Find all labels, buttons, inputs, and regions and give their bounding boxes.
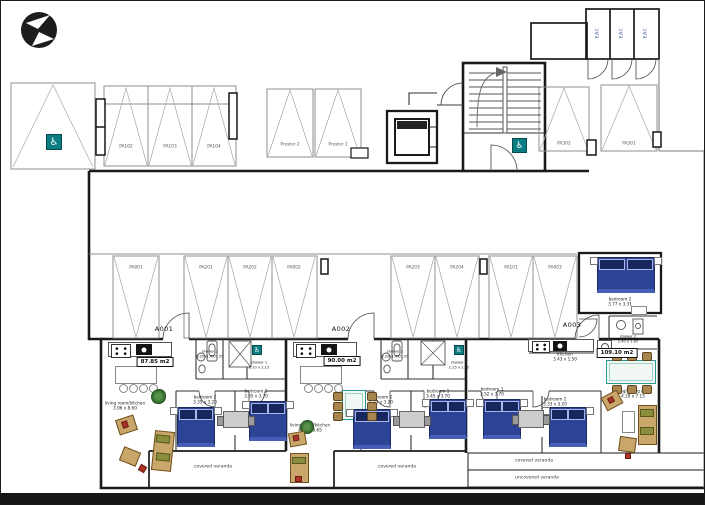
room-dims: 2.40 x 1.65 xyxy=(618,339,638,344)
parking-stall-label: PA003 xyxy=(548,266,561,271)
cushion xyxy=(295,476,302,482)
wheelchair-icon: ♿ xyxy=(46,134,62,150)
dining-counter-table xyxy=(115,366,157,384)
parking-stall-label: PA103 xyxy=(163,145,176,150)
veranda-label: covered veranda xyxy=(515,459,553,464)
room-label-kitchen: kitchen3.43 x 1.50 xyxy=(553,352,577,363)
double-bed xyxy=(177,407,215,447)
unit-area-a001: 87.85 m2 xyxy=(137,357,174,367)
room-label-shower2: shower 23.20x1.49/1.05 xyxy=(196,349,223,358)
room-name: shower 1 xyxy=(449,360,469,365)
parking-stall-label: PA101 xyxy=(504,266,517,271)
chair xyxy=(333,402,343,411)
room-dims: 3.96 x 8.60 xyxy=(105,406,145,411)
chair xyxy=(367,392,377,401)
plant xyxy=(151,389,166,404)
parking-stall-label: PA202 xyxy=(243,266,256,271)
cushion xyxy=(292,457,306,464)
veranda-label: uncovered veranda xyxy=(515,476,559,481)
dining-table xyxy=(606,360,656,384)
parking-stall-label: PA302 xyxy=(557,142,570,147)
nightstand xyxy=(214,407,222,415)
nightstand xyxy=(346,409,354,417)
wheelchair-glyph: ♿ xyxy=(50,137,59,148)
nightstand xyxy=(476,399,484,407)
nightstand xyxy=(242,401,250,409)
parking-stall-label: PA201 xyxy=(199,266,212,271)
cushion xyxy=(625,453,631,459)
double-bed xyxy=(429,399,467,439)
unit-area-a003: 109.10 m2 xyxy=(597,348,638,358)
wheelchair-glyph: ♿ xyxy=(254,346,260,354)
room-label-shower2: shower 22.40 x 1.65 xyxy=(618,334,638,343)
parking-stall-label: PA204 xyxy=(450,266,463,271)
nightstand xyxy=(586,407,594,415)
room-name: shower 2 xyxy=(618,334,638,339)
cushion xyxy=(156,434,171,443)
floorplan-sheet: EAC EAC EAC ♿ ♿ ♿ ♿ PA102 PA103 PA104 Pr… xyxy=(0,0,705,505)
parking-stall-label: Prostor 1 xyxy=(328,143,347,148)
room-label-bedroom1: bedroom 13.35 x 3.70 xyxy=(244,389,268,400)
cushion xyxy=(156,452,171,461)
kitchen-sink-icon xyxy=(136,344,152,355)
nightstand xyxy=(422,399,430,407)
chair-round xyxy=(304,384,313,393)
parking-stall-label: PA203 xyxy=(406,266,419,271)
cushion xyxy=(293,435,300,442)
parking-stall-label: PA001 xyxy=(129,266,142,271)
company-logo-icon xyxy=(17,8,61,52)
veranda-label: covered veranda xyxy=(194,465,232,470)
chair-round xyxy=(139,384,148,393)
desk xyxy=(399,411,425,428)
room-dims: 3.20x1.49/1.05 xyxy=(381,354,408,359)
closet-label: EAC xyxy=(644,28,649,39)
room-dims: 3.43 x 1.50 xyxy=(553,357,577,362)
room-name: shower 1 xyxy=(249,360,269,365)
room-label-bedroom1: bedroom 13.45 x 3.70 xyxy=(426,389,450,400)
room-label-bedroom2-top: bedroom 23.77 x 3.31 xyxy=(608,297,632,308)
chair xyxy=(642,352,652,361)
stove-icon xyxy=(111,344,131,358)
unit-id-a003: A003 xyxy=(563,321,581,329)
kitchen-sink-icon xyxy=(553,341,567,351)
nightstand xyxy=(654,257,662,265)
footer-bar xyxy=(1,493,705,505)
chair xyxy=(333,412,343,421)
room-dims: 2.10 x 2.15 xyxy=(249,365,269,370)
desk xyxy=(223,411,249,428)
nightstand xyxy=(466,399,474,407)
chair-round xyxy=(129,384,138,393)
wheelchair-glyph: ♿ xyxy=(515,141,523,151)
dresser xyxy=(631,306,647,315)
chair xyxy=(333,392,343,401)
double-bed xyxy=(597,257,655,293)
closet-label: EAC xyxy=(620,28,625,39)
room-label-shower1: shower 12.25 x 2.15 xyxy=(449,360,469,369)
wheelchair-icon: ♿ xyxy=(252,345,262,355)
unit-id-a001: A001 xyxy=(155,325,173,333)
kitchen-sink-icon xyxy=(321,344,337,355)
nightstand xyxy=(520,399,528,407)
parking-stall-label: PA102 xyxy=(119,145,132,150)
nightstand xyxy=(170,407,178,415)
wheelchair-glyph: ♿ xyxy=(456,346,462,354)
chair xyxy=(367,412,377,421)
armchair xyxy=(618,436,637,453)
veranda-label: covered veranda xyxy=(378,465,416,470)
chair xyxy=(627,385,637,394)
nightstand xyxy=(590,257,598,265)
wheelchair-icon: ♿ xyxy=(512,138,527,153)
parking-stall-label: Prostor 2 xyxy=(280,143,299,148)
room-dims: 3.35 x 3.20 xyxy=(193,400,217,405)
room-label-bedroom1: bedroom 13.52 x 3.70 xyxy=(480,387,504,398)
chair xyxy=(642,385,652,394)
room-label-shower2: shower 23.20x1.49/1.05 xyxy=(381,349,408,358)
unit-id-a002: A002 xyxy=(332,325,350,333)
room-dims: 3.77 x 3.31 xyxy=(608,302,632,307)
room-dims: 2.25 x 2.15 xyxy=(449,365,469,370)
room-label-bedroom2: bedroom 23.35 x 3.20 xyxy=(193,395,217,406)
desk xyxy=(518,410,544,428)
parking-stall-label: PA301 xyxy=(622,142,635,147)
chair-round xyxy=(119,384,128,393)
cushion xyxy=(640,409,654,417)
chair-round xyxy=(314,384,323,393)
chair-round xyxy=(324,384,333,393)
room-label-bedroom2: bedroom 23.33 x 3.20 xyxy=(543,397,567,408)
dining-counter-table xyxy=(300,366,342,384)
parking-stall-label: PA002 xyxy=(287,266,300,271)
stove-icon xyxy=(296,344,316,358)
wheelchair-icon: ♿ xyxy=(454,345,464,355)
unit-area-a002: 90.00 m2 xyxy=(324,356,361,366)
double-bed xyxy=(549,407,587,447)
room-dims: 3.20x1.49/1.05 xyxy=(196,354,223,359)
room-dims: 3.35 x 3.70 xyxy=(244,394,268,399)
stove-icon xyxy=(532,341,550,353)
room-label-living: living room/kitchen3.96 x 8.60 xyxy=(105,401,145,412)
room-dims: 3.52 x 3.70 xyxy=(480,392,504,397)
cushion xyxy=(640,427,654,435)
nightstand xyxy=(286,401,294,409)
parking-stall-label: PA104 xyxy=(207,145,220,150)
closet-label: EAC xyxy=(596,28,601,39)
chair xyxy=(367,402,377,411)
coffee-table xyxy=(622,411,635,433)
room-label-shower1: shower 12.10 x 2.15 xyxy=(249,360,269,369)
